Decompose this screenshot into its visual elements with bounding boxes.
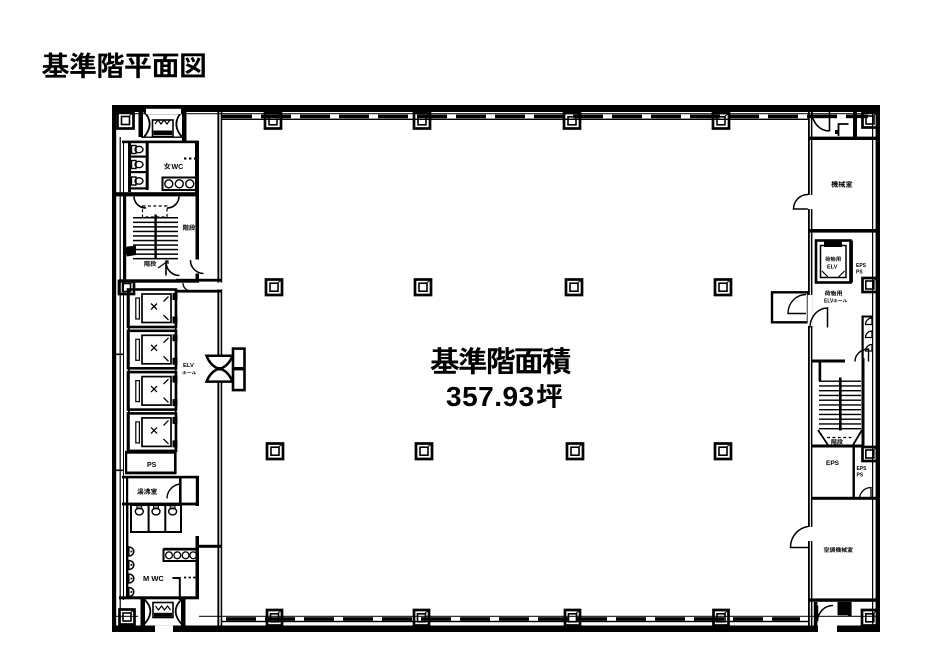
svg-text:PS: PS (147, 462, 157, 469)
svg-text:ELV: ELV (824, 299, 834, 305)
svg-text:PS: PS (857, 473, 864, 479)
svg-text:EPS: EPS (856, 263, 867, 269)
svg-text:ELV: ELV (827, 265, 838, 271)
svg-text:ELV: ELV (183, 363, 194, 369)
svg-text:EPS: EPS (826, 460, 840, 467)
svg-text:PS: PS (856, 270, 863, 276)
svg-text:EPS: EPS (857, 466, 868, 472)
svg-text:357.93: 357.93 (446, 381, 535, 412)
svg-text:M WC: M WC (143, 574, 164, 583)
svg-text:WC: WC (172, 164, 184, 171)
